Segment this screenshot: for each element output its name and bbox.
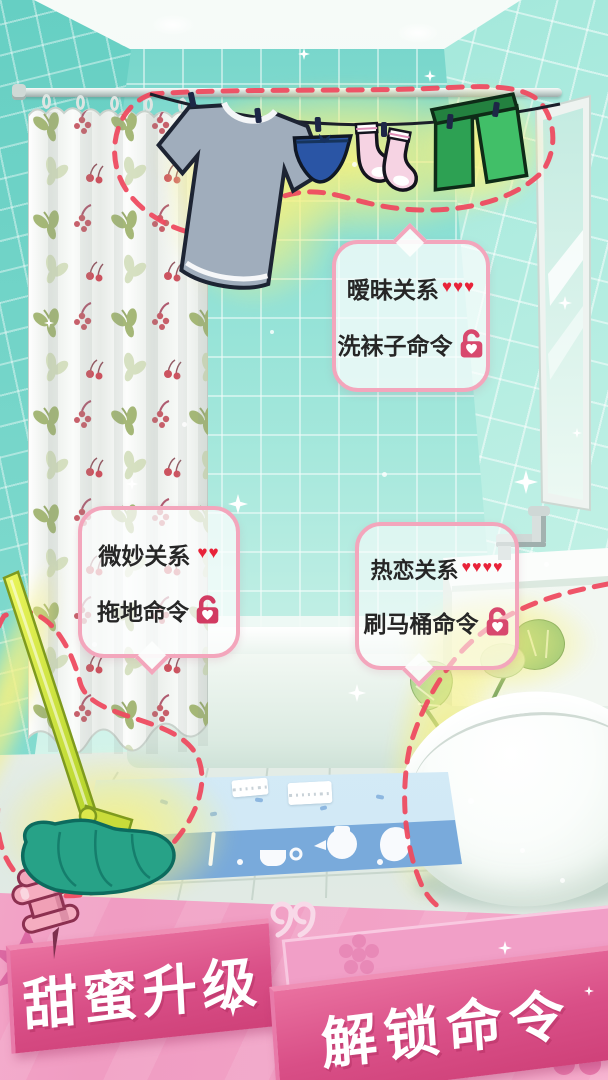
heart-icons: ♥♥♥ <box>442 277 475 297</box>
unlock-heart-padlock-icon <box>484 606 511 638</box>
bathroom-scene: 暧昧关系♥♥♥ 洗袜子命令 微妙关系♥♥ 拖地命令 <box>0 0 608 1080</box>
relationship-label: 暧昧关系 <box>347 271 439 305</box>
relationship-label: 热恋关系 <box>370 553 458 585</box>
command-label: 拖地命令 <box>97 593 189 627</box>
command-bubble-brush-toilet[interactable]: 热恋关系♥♥♥♥ 刷马桶命令 <box>355 522 519 670</box>
heart-icons: ♥♥ <box>197 543 219 563</box>
relationship-label: 微妙关系 <box>98 537 190 571</box>
unlock-heart-padlock-icon <box>458 328 485 360</box>
banner-text: 解锁命令 <box>318 969 574 1080</box>
unlock-heart-padlock-icon <box>194 594 221 626</box>
command-bubble-mop-floor[interactable]: 微妙关系♥♥ 拖地命令 <box>78 506 240 658</box>
double-quote-icon <box>266 896 322 940</box>
command-bubble-wash-socks[interactable]: 暧昧关系♥♥♥ 洗袜子命令 <box>332 240 490 392</box>
mat-tag <box>231 777 268 797</box>
heart-icons: ♥♥♥♥ <box>462 559 504 577</box>
mat-tag <box>287 781 332 805</box>
command-label: 洗袜子命令 <box>338 327 453 361</box>
command-label: 刷马桶命令 <box>364 605 479 639</box>
flower-decoration <box>352 948 366 962</box>
